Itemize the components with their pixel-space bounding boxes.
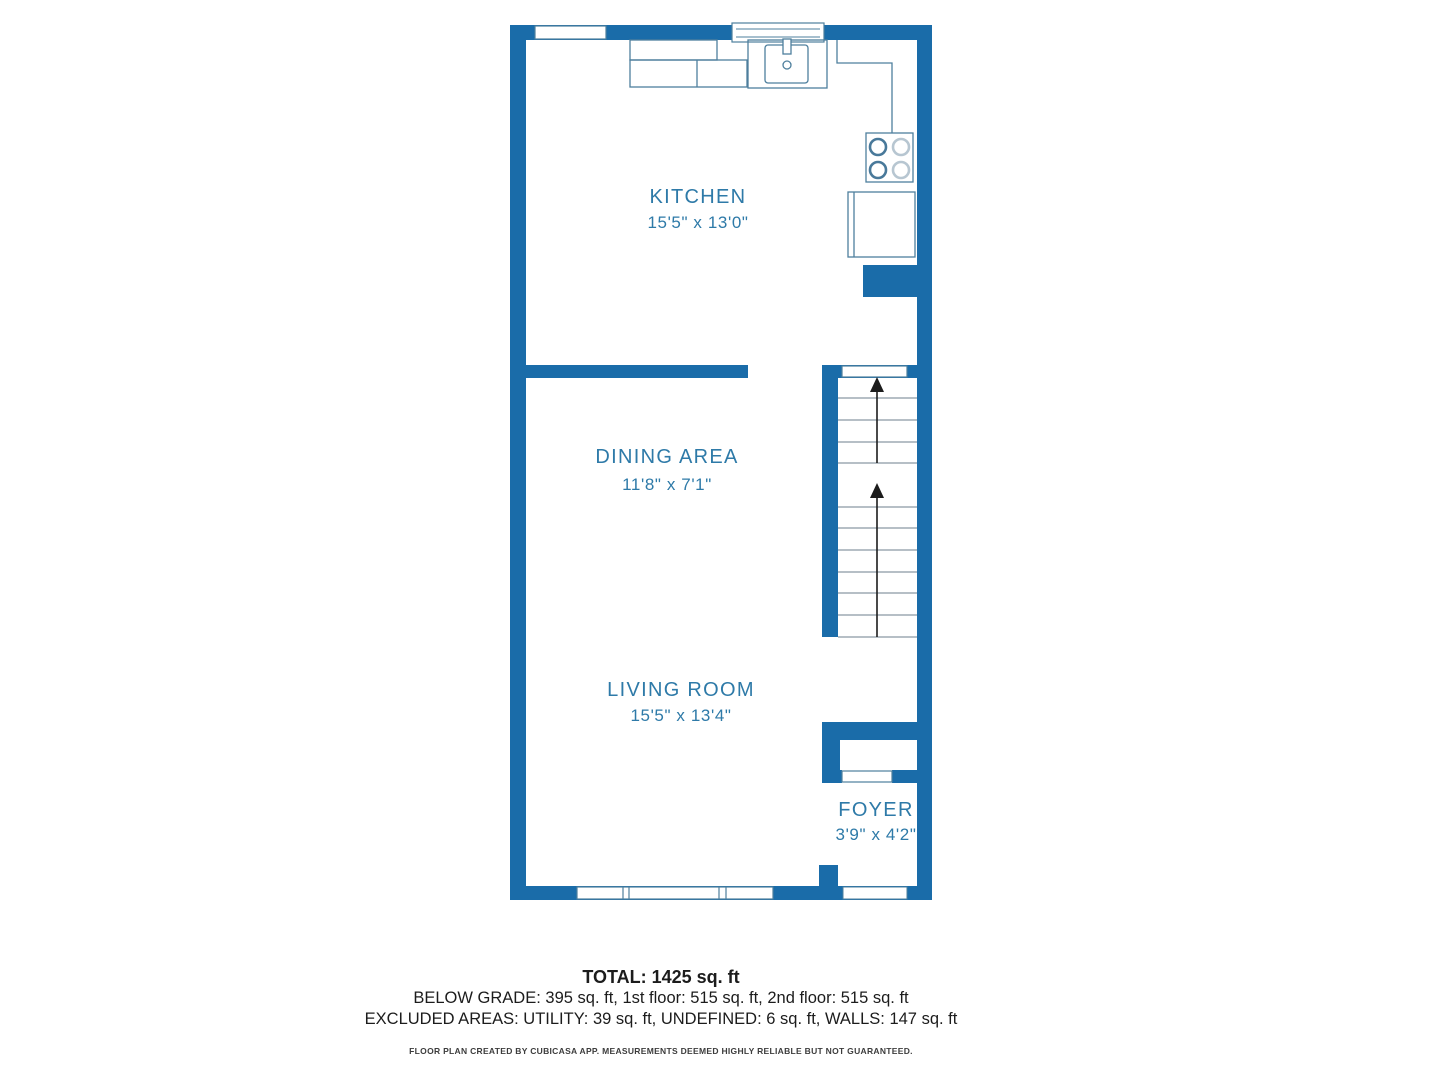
window-icon [577, 887, 773, 899]
window-icon [535, 26, 606, 39]
room-label-dining-area: DINING AREA [595, 446, 738, 468]
refrigerator-icon [848, 192, 915, 257]
kitchen-counter [630, 40, 892, 133]
room-label-living-room: LIVING ROOM [607, 679, 755, 701]
door-opening-stairs [842, 366, 907, 377]
wall-right [917, 25, 932, 900]
floor-plan-canvas: KITCHEN 15'5" x 13'0" DINING AREA 11'8" … [0, 0, 1440, 1080]
stove-icon [866, 133, 913, 182]
room-dims-living-room: 15'5" x 13'4" [630, 706, 731, 725]
wall-left [510, 25, 526, 900]
door-opening-closet [842, 771, 892, 782]
wall-dining-divider [512, 365, 748, 378]
wall-closet-stub-right [892, 770, 917, 783]
wall-kitchen-stub [863, 265, 917, 297]
wall-stair-left [822, 365, 838, 637]
floor-breakdown-text: BELOW GRADE: 395 sq. ft, 1st floor: 515 … [0, 988, 1322, 1009]
total-area-text: TOTAL: 1425 sq. ft [0, 967, 1322, 988]
staircase [838, 377, 917, 637]
disclaimer-text: FLOOR PLAN CREATED BY CUBICASA APP. MEAS… [0, 1046, 1322, 1056]
room-dims-dining-area: 11'8" x 7'1" [622, 475, 712, 494]
excluded-areas-text: EXCLUDED AREAS: UTILITY: 39 sq. ft, UNDE… [0, 1009, 1322, 1030]
sink-icon [765, 39, 808, 83]
window-icon [732, 23, 824, 42]
wall-closet-stub-left [822, 770, 842, 783]
up-arrow-icon [870, 483, 884, 637]
interior-walls [512, 265, 917, 890]
room-dims-kitchen: 15'5" x 13'0" [647, 213, 748, 232]
area-summary: TOTAL: 1425 sq. ft BELOW GRADE: 395 sq. … [0, 967, 1322, 1056]
room-label-foyer: FOYER [838, 799, 913, 821]
room-label-kitchen: KITCHEN [650, 186, 747, 208]
wall-foyer-stub [819, 865, 838, 890]
room-dims-foyer: 3'9" x 4'2" [836, 825, 917, 844]
door-opening-entry [843, 887, 907, 899]
